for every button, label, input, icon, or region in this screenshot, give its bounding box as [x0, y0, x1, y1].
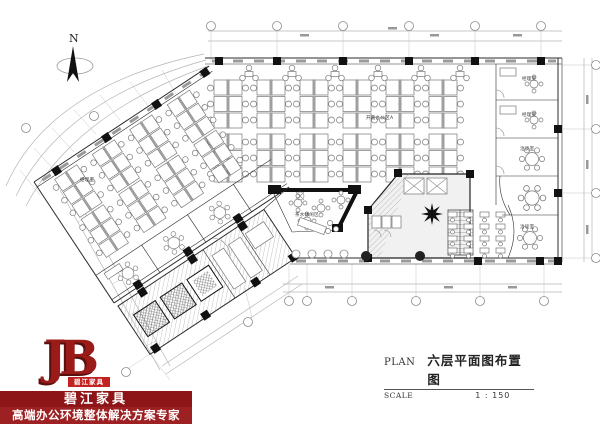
north-arrow: N: [57, 32, 93, 82]
plan-label: PLAN: [384, 357, 415, 368]
plan-title: 六层平面图布置图: [427, 350, 534, 388]
north-label: N: [69, 32, 79, 45]
scale-value: 1 : 150: [475, 391, 510, 400]
brand-name-band: 碧江家具: [0, 391, 192, 407]
north-arrow-needle: [67, 46, 79, 82]
core: [364, 169, 474, 262]
open-office-label: 开敞办公区A: [366, 114, 394, 121]
floor-plan-page: N 开敞办公区A: [0, 0, 600, 424]
scale-label: SCALE: [384, 391, 413, 400]
brand-tagline-band: 高端办公环境整体解决方案专家: [0, 407, 192, 424]
negotiation-room-label: 洽谈室: [520, 145, 535, 152]
negotiation-room-label: 洽谈室: [520, 223, 535, 230]
manager-room-label: 经理室: [522, 75, 537, 82]
lounge-label: 茶水休闲区: [295, 211, 319, 218]
wing-manager-label: 经理室: [80, 176, 95, 183]
right-offices: 经理室 经理室 洽谈室 洽谈室: [496, 64, 558, 249]
manager-room-label: 经理室: [522, 111, 537, 118]
title-block: PLAN 六层平面图布置图 SCALE 1 : 150: [384, 350, 534, 400]
logo-banner: 碧江家具: [68, 377, 110, 387]
